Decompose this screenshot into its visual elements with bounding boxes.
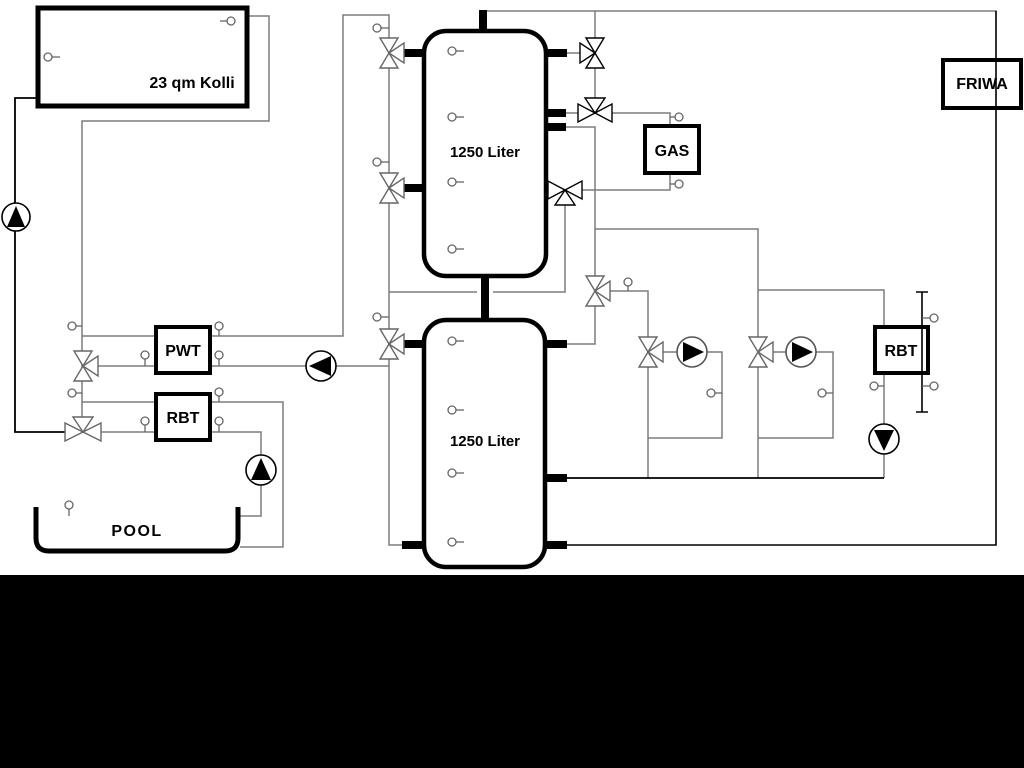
pump-icon bbox=[786, 337, 816, 367]
sensor-icon bbox=[922, 382, 938, 390]
sensor-icon bbox=[624, 278, 632, 291]
sensor-icon bbox=[215, 417, 223, 432]
sensor-icon bbox=[215, 351, 223, 366]
tank-bottom-label: 1250 Liter bbox=[450, 433, 520, 450]
sensor-icon bbox=[670, 113, 683, 121]
tank-top-label: 1250 Liter bbox=[450, 144, 520, 161]
rbt-left-label: RBT bbox=[167, 410, 200, 427]
sensor-icon bbox=[68, 389, 82, 397]
three-way-valve-icon bbox=[749, 337, 773, 367]
pool-supply-pipe bbox=[98, 432, 261, 516]
heating-header-pipe bbox=[595, 229, 758, 337]
solar-return-pipe bbox=[15, 98, 65, 432]
three-way-valve-icon bbox=[380, 38, 404, 68]
sensor-icon bbox=[373, 24, 389, 32]
three-way-valve-icon bbox=[380, 329, 404, 359]
pump-icon bbox=[2, 203, 30, 231]
heating-branch-2-loop bbox=[758, 352, 833, 478]
friwa-circulation-pipe bbox=[567, 11, 996, 545]
rbt-right-feed-pipe bbox=[758, 290, 884, 327]
pump-icon bbox=[306, 351, 336, 381]
three-way-valve-icon bbox=[639, 337, 663, 367]
pump-icon bbox=[677, 337, 707, 367]
rbt-right-label: RBT bbox=[885, 343, 918, 360]
three-way-valve-icon bbox=[380, 173, 404, 203]
sensor-icon bbox=[922, 314, 938, 322]
three-way-valve-icon bbox=[586, 276, 610, 306]
sensor-icon bbox=[65, 501, 73, 516]
sensor-icon bbox=[215, 322, 223, 336]
heating-branch-1-loop bbox=[648, 352, 722, 478]
three-way-valve-icon bbox=[548, 181, 582, 205]
gas-return-pipe bbox=[580, 173, 670, 190]
pump-icon bbox=[246, 455, 276, 485]
collector-label: 23 qm Kolli bbox=[149, 75, 234, 92]
schematic-canvas: 23 qm Kolli 1250 Liter 1250 Liter PWT RB… bbox=[0, 0, 1024, 768]
three-way-valve-icon bbox=[580, 38, 604, 68]
three-way-valve-icon bbox=[578, 98, 612, 122]
pipes-black-overlay bbox=[567, 11, 996, 545]
friwa-label: FRIWA bbox=[956, 76, 1008, 93]
sensor-icon bbox=[870, 382, 884, 390]
three-way-valve-icon bbox=[74, 351, 98, 381]
heating-branch-1-feed bbox=[609, 291, 648, 337]
sensor-icon bbox=[373, 158, 389, 166]
sensor-icon bbox=[670, 180, 683, 188]
hydraulic-schematic: 23 qm Kolli 1250 Liter 1250 Liter PWT RB… bbox=[0, 0, 1024, 768]
pool-label: POOL bbox=[111, 523, 162, 540]
sensor-icon bbox=[215, 388, 223, 402]
bottom-black-bar bbox=[0, 575, 1024, 768]
pump-icon bbox=[869, 424, 899, 454]
sensor-icon bbox=[141, 351, 149, 366]
tank2-upper-right-link bbox=[567, 306, 595, 344]
pwt-label: PWT bbox=[165, 343, 201, 360]
three-way-valve-icon bbox=[65, 417, 101, 441]
sensor-icon bbox=[141, 417, 149, 432]
sensor-icon bbox=[707, 389, 722, 397]
sensor-icon bbox=[818, 389, 833, 397]
gas-label: GAS bbox=[655, 143, 690, 160]
sensor-icon bbox=[68, 322, 82, 330]
sensor-icon bbox=[373, 313, 389, 321]
